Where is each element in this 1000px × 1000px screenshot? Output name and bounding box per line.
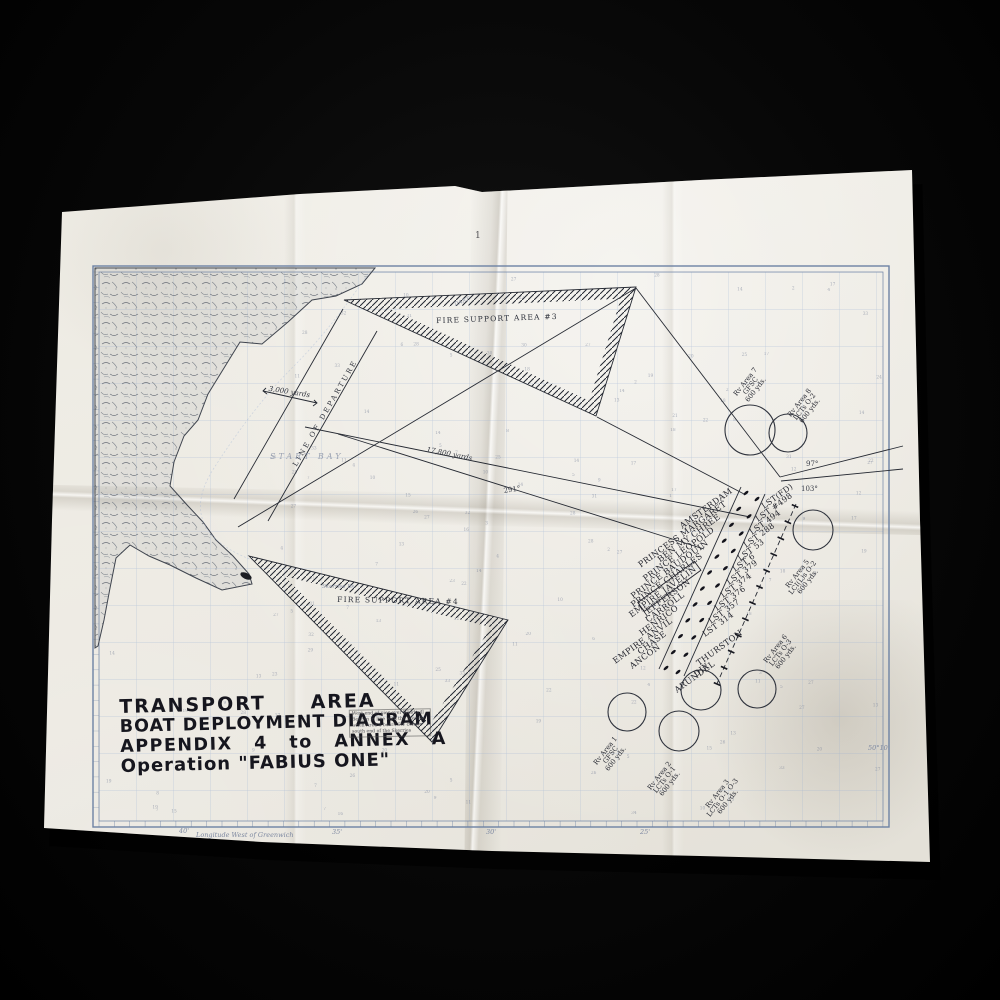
sounding: 6 (401, 343, 404, 348)
sounding: 11 (295, 375, 301, 380)
sounding: 12 (856, 492, 862, 497)
sounding: 23 (449, 579, 455, 584)
sounding: 17 (851, 517, 857, 522)
sounding: 7 (375, 563, 378, 568)
sounding: 14 (619, 389, 625, 394)
sounding: 15 (171, 809, 177, 814)
sounding: 20 (424, 790, 430, 795)
place-skerries-bank: Skerries Bk (322, 584, 355, 590)
sounding: 5 (450, 779, 453, 784)
sounding: 33 (311, 447, 317, 452)
sounding: 11 (394, 683, 400, 688)
sounding: 29 (308, 649, 314, 654)
sounding: 14 (859, 411, 865, 416)
sounding: 1 (284, 280, 287, 285)
sounding: 16 (338, 812, 344, 817)
sounding: 6 (592, 637, 595, 642)
sounding: 15 (405, 494, 411, 499)
sounding: 5 (780, 685, 783, 690)
sounding: 33 (445, 679, 451, 684)
sounding: 32 (465, 511, 471, 516)
sounding: 1 (669, 494, 672, 499)
sounding: 8 (156, 791, 159, 796)
sounding: 2 (607, 548, 610, 553)
latitude-label: 50°10' (868, 744, 890, 752)
sounding: 28 (413, 343, 419, 348)
place-start-bay: START BAY (270, 452, 344, 461)
sounding: 32 (308, 633, 314, 638)
sounding: 17 (764, 352, 770, 357)
sounding: 9 (803, 517, 806, 522)
sounding: 17 (631, 462, 637, 467)
sounding: 10 (370, 476, 376, 481)
sounding: 7 (307, 476, 310, 481)
sounding: 8 (506, 429, 509, 434)
sounding: 7 (156, 808, 159, 813)
sounding: 11 (512, 642, 518, 647)
sounding: 30 (521, 344, 527, 349)
sounding: 17 (671, 488, 677, 493)
sounding: 33 (863, 312, 869, 317)
sounding: 19 (536, 720, 542, 725)
sounding: 25 (495, 456, 501, 461)
sounding: 13 (614, 398, 620, 403)
sounding: 4 (827, 288, 830, 293)
sounding: 28 (588, 539, 594, 544)
sounding: 19 (106, 779, 112, 784)
sounding: 5 (572, 473, 575, 478)
sounding: 19 (861, 550, 867, 555)
sounding: 14 (574, 459, 580, 464)
sounding: 13 (376, 619, 382, 624)
sounding: 17 (830, 283, 836, 288)
sounding: 27 (617, 551, 623, 556)
sounding: 4 (352, 463, 355, 468)
sounding: 25 (435, 668, 441, 673)
sounding: 4 (280, 547, 283, 552)
sounding: 33 (779, 766, 785, 771)
sounding: 14 (109, 652, 115, 657)
sounding: 10 (557, 598, 563, 603)
sounding: 26 (591, 771, 597, 776)
sounding: 27 (273, 613, 279, 618)
sounding: 27 (875, 767, 881, 772)
sounding: 22 (703, 418, 709, 423)
sounding: 11 (755, 679, 761, 684)
sounding: 12 (791, 468, 797, 473)
sounding: 20 (817, 747, 823, 752)
longitude-tick-label: 35' (332, 828, 342, 836)
sounding: 27 (799, 706, 805, 711)
sounding: 7 (769, 578, 772, 583)
note-line: south end of the Skerries (352, 728, 428, 735)
longitude-caption: Longitude West of Greenwich (195, 831, 294, 839)
sounding: 11 (466, 801, 472, 806)
longitude-tick-label: 30' (486, 828, 496, 836)
longitude-tick-label: 25' (639, 828, 650, 836)
sounding: 24 (876, 376, 882, 381)
sounding: 14 (476, 569, 482, 574)
sounding: 33 (335, 364, 341, 369)
sounding: 34 (631, 811, 637, 816)
sounding: 19 (648, 374, 654, 379)
sounding: 15 (707, 747, 713, 752)
sounding: 31 (592, 495, 598, 500)
sounding: 4 (496, 554, 499, 559)
sounding: 7 (314, 784, 317, 789)
bearing-103: 103° (801, 485, 818, 493)
sounding: 28 (570, 512, 576, 517)
sounding: 7 (346, 606, 349, 611)
sounding: 22 (868, 459, 874, 464)
photo-backdrop: 7192891119330161272210137191519242628942… (0, 0, 1000, 1000)
sounding: 31 (786, 455, 792, 460)
sounding: 14 (737, 288, 743, 293)
sounding: 20 (526, 632, 532, 637)
sounding: 5 (290, 610, 293, 615)
sounding: 10 (483, 471, 489, 476)
fold-mark: 1 (475, 231, 481, 241)
sounding: 27 (585, 343, 591, 348)
sounding: 13 (873, 703, 879, 708)
sounding: 13 (399, 542, 405, 547)
sounding: 7 (323, 807, 326, 812)
sounding: 28 (654, 273, 660, 278)
bearing-97: 97° (806, 460, 818, 468)
sounding: 13 (730, 731, 736, 736)
sounding: 23 (272, 672, 278, 677)
sounding: 26 (413, 510, 419, 515)
sounding: 12 (640, 667, 646, 672)
sounding: 28 (302, 331, 308, 336)
sounding: 9 (598, 478, 601, 483)
sounding: 27 (511, 277, 517, 282)
sounding: 5 (627, 755, 630, 760)
sounding: 26 (350, 774, 356, 779)
sounding: 13 (256, 675, 262, 680)
sounding: 18 (780, 570, 786, 575)
sounding: 27 (424, 516, 430, 521)
sounding: 16 (464, 528, 470, 533)
sounding: 26 (720, 740, 726, 745)
sounding: 3 (759, 671, 762, 676)
nautical-chart: 7192891119330161272210137191519242628942… (0, 0, 1000, 1000)
sounding: 22 (631, 700, 637, 705)
sounding: 22 (461, 582, 467, 587)
sounding: 4 (647, 683, 650, 688)
sounding: 27 (808, 681, 814, 686)
transit-note-box: West end of pier over Windmill Beacon in… (349, 708, 431, 737)
sounding: 2 (792, 287, 795, 292)
sounding: 27 (291, 505, 297, 510)
longitude-tick-label: 40' (178, 827, 189, 835)
sounding: 14 (435, 431, 441, 436)
sounding: 5 (450, 354, 453, 359)
sounding: 2 (726, 388, 729, 393)
sounding: 3 (485, 522, 488, 527)
sounding: 22 (546, 688, 552, 693)
sounding: 21 (672, 414, 678, 419)
sounding: 32 (341, 311, 347, 316)
sounding: 18 (670, 428, 676, 433)
sounding: 25 (742, 353, 748, 358)
sounding: 10 (700, 806, 706, 811)
sounding: 14 (364, 410, 370, 415)
sounding: 9 (434, 796, 437, 801)
sounding: 2 (634, 381, 637, 386)
